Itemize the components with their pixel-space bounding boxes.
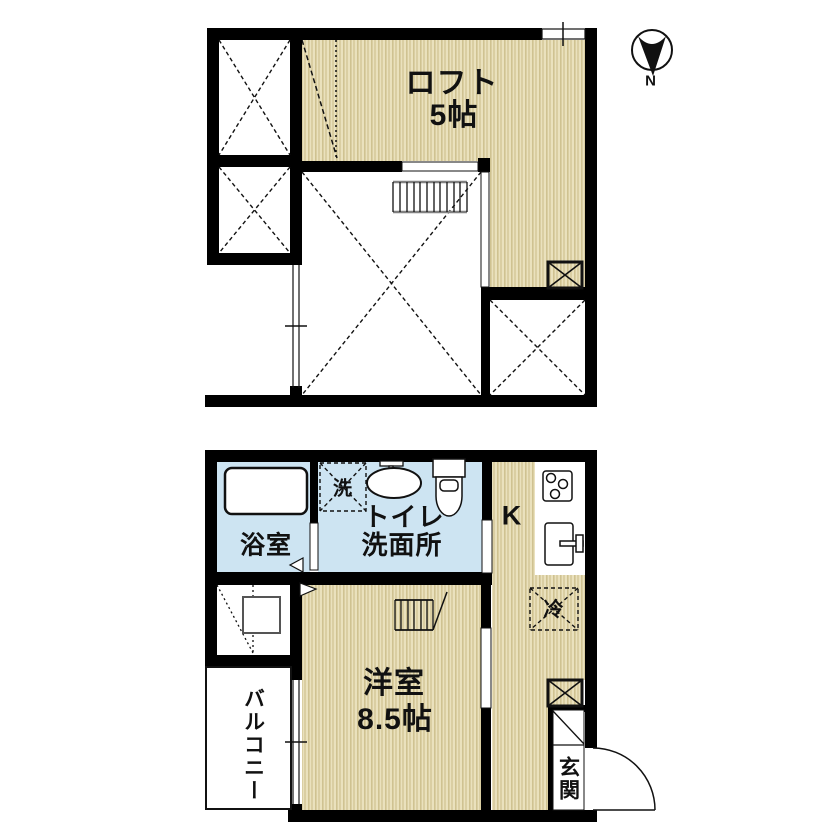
loft-left-window <box>285 265 307 388</box>
entrance-door <box>593 748 655 810</box>
stove <box>543 471 572 501</box>
laundry-label: 洗 <box>333 480 353 499</box>
service-space <box>217 585 280 655</box>
balcony-label: バルコニー <box>243 688 264 803</box>
north-label: N <box>645 74 657 89</box>
loft-edge-opening <box>402 162 478 171</box>
loft-label: ロフト <box>406 69 499 99</box>
kitchen-label: K <box>502 503 523 530</box>
bath-door-opening <box>310 523 318 570</box>
loft-size-label: 5帖 <box>430 101 479 131</box>
washroom-label-line1: トイレ <box>363 504 444 530</box>
washroom-label-line2: 洗面所 <box>361 532 442 558</box>
floor-plan-page: ロフト 5帖 N 浴室 洗 トイレ 洗面所 K 冷 洋室 8.5帖 バルコニー … <box>0 0 840 840</box>
entrance-shaft-box <box>548 680 582 706</box>
fridge-label: 冷 <box>544 600 565 620</box>
loft-floor-plan <box>205 22 597 407</box>
bath-label: 浴室 <box>240 534 292 559</box>
bathtub <box>225 468 307 514</box>
room-label: 洋室 <box>363 669 425 699</box>
washroom-door-opening <box>482 520 492 573</box>
hall-floor <box>492 680 548 810</box>
loft-railing <box>481 172 489 287</box>
room-kitchen-opening <box>481 628 491 708</box>
room-size-label: 8.5帖 <box>357 705 433 735</box>
loft-shaft-box <box>548 262 582 288</box>
loft-ladder <box>393 182 467 212</box>
kitchen-floor-lower <box>492 575 585 680</box>
entrance-label: 玄関 <box>558 756 579 802</box>
north-indicator <box>632 30 672 76</box>
